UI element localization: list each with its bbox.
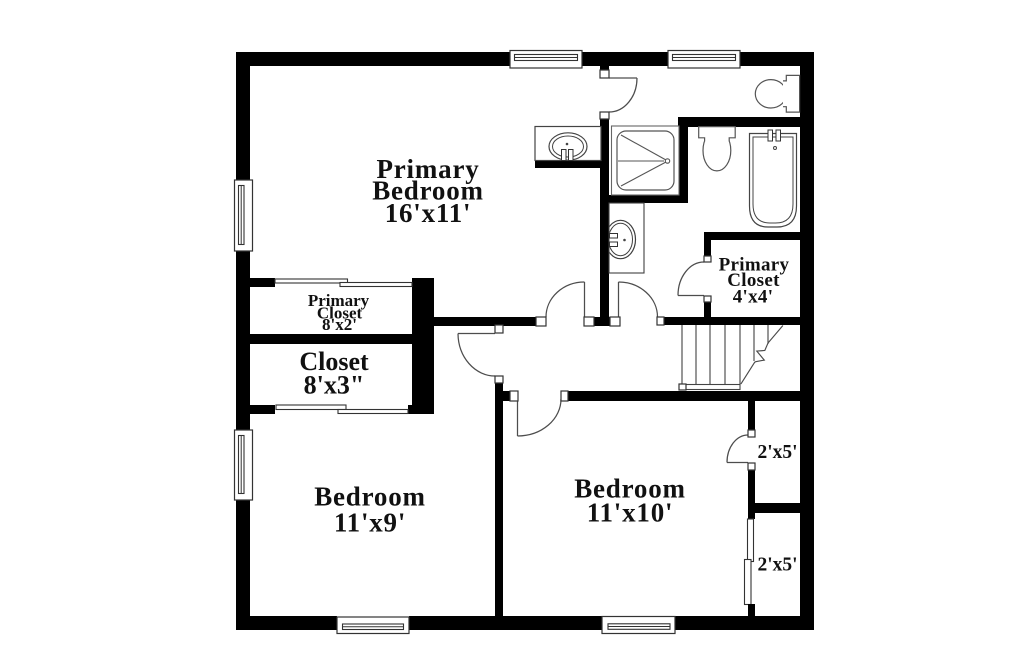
svg-text:2'x5': 2'x5' xyxy=(757,555,797,576)
svg-text:4'x4': 4'x4' xyxy=(733,287,774,308)
svg-text:11'x10': 11'x10' xyxy=(587,498,674,528)
svg-text:2'x5': 2'x5' xyxy=(757,442,797,463)
svg-text:16'x11': 16'x11' xyxy=(385,198,472,228)
svg-text:8'x2': 8'x2' xyxy=(322,315,357,334)
svg-text:11'x9': 11'x9' xyxy=(334,508,406,538)
svg-text:8'x3": 8'x3" xyxy=(304,371,365,400)
